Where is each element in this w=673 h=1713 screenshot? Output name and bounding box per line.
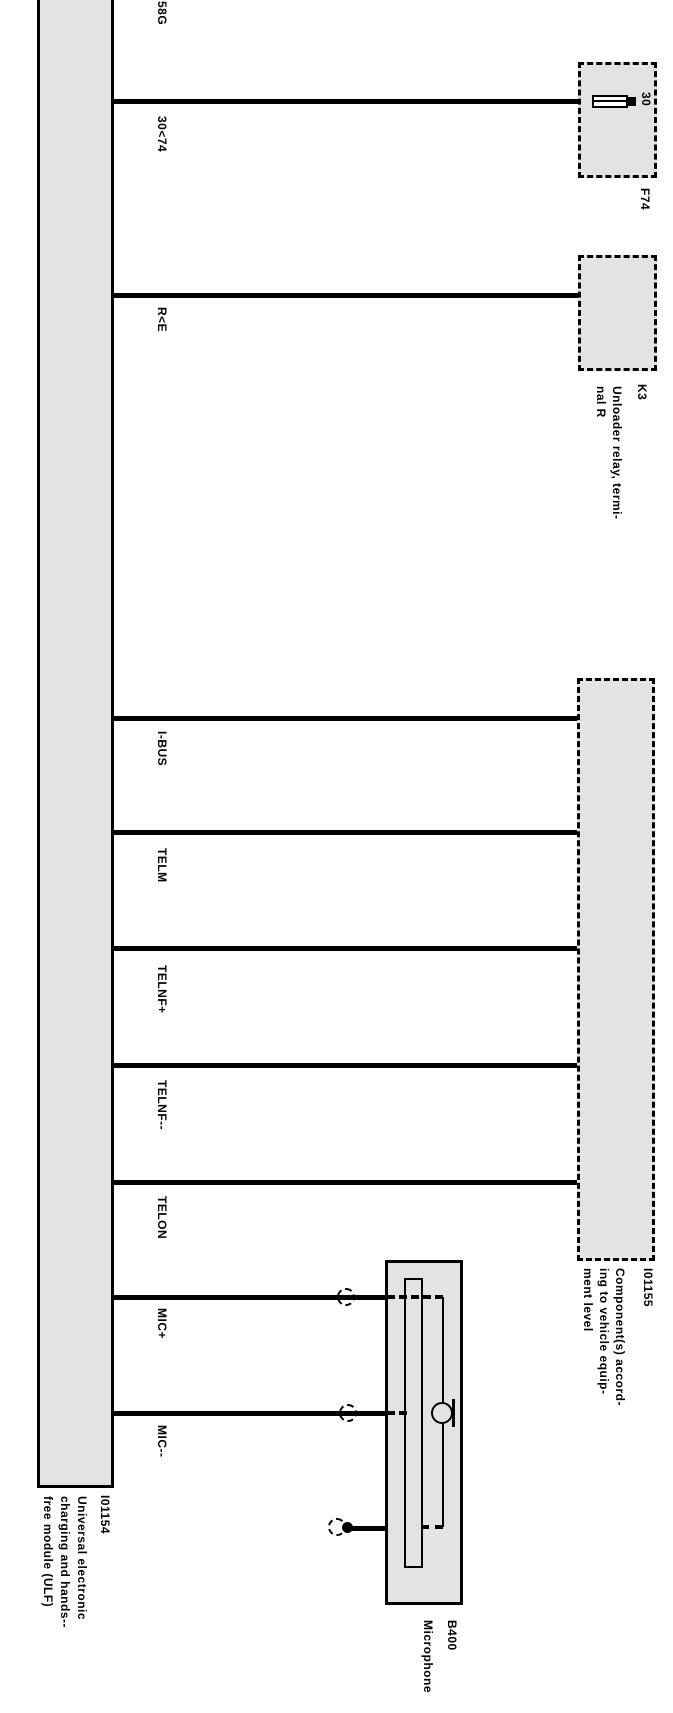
fuse-id-label: F74 xyxy=(637,188,652,210)
microphone-capsule-icon xyxy=(431,1402,453,1424)
equipment-name-label: Component(s) accord- ing to vehicle equi… xyxy=(580,1268,628,1406)
wire-label-30-74: 30<74 xyxy=(154,116,169,152)
fuse-symbol-centerline xyxy=(594,100,626,102)
wire-label-58g: 58G xyxy=(154,1,169,25)
wire-r-e xyxy=(114,293,580,298)
wiring-diagram: 58G 30<74 R<E I-BUS TELM TELNF+ TELNF-- … xyxy=(0,0,673,1713)
wire-label-mic-plus: MIC+ xyxy=(154,1308,169,1339)
wire-telnf-plus xyxy=(114,946,579,951)
relay-box-k3 xyxy=(578,255,657,371)
relay-id-label: K3 xyxy=(634,384,649,400)
wire-label-i-bus: I-BUS xyxy=(154,731,169,766)
connector-mic-minus-icon xyxy=(339,1404,357,1422)
module-name-label: Universal electronic charging and hands-… xyxy=(39,1496,90,1628)
wire-label-mic-minus: MIC-- xyxy=(154,1425,169,1458)
microphone-id-label: B400 xyxy=(444,1620,459,1651)
fuse-terminal-square xyxy=(627,97,636,106)
module-id-label: I01154 xyxy=(97,1495,112,1534)
connector-mic-plus-icon xyxy=(337,1288,355,1306)
shield-junction-dot xyxy=(342,1522,353,1533)
microphone-capsule-bar xyxy=(452,1399,455,1427)
microphone-dash-mic-plus xyxy=(387,1295,443,1299)
wire-i-bus xyxy=(114,716,579,721)
wire-telon xyxy=(114,1180,579,1185)
microphone-box-b400 xyxy=(385,1260,463,1605)
ulf-module-box xyxy=(37,0,114,1488)
wire-label-telon: TELON xyxy=(154,1196,169,1239)
wire-label-r-e: R<E xyxy=(154,307,169,332)
wire-30-74 xyxy=(114,99,580,104)
fuse-box-f74 xyxy=(578,62,657,178)
wire-label-telnf-plus: TELNF+ xyxy=(154,965,169,1014)
wire-telm xyxy=(114,830,579,835)
relay-name-label: Unloader relay, termi- nal R xyxy=(593,386,625,519)
wire-mic-shield xyxy=(348,1526,387,1531)
wire-label-telm: TELM xyxy=(154,848,169,883)
equipment-id-label: I01155 xyxy=(640,1268,655,1307)
microphone-dash-mic-minus xyxy=(387,1411,407,1415)
equipment-box-i01155 xyxy=(577,678,655,1261)
microphone-dash-shield xyxy=(421,1525,443,1529)
microphone-name-label: Microphone xyxy=(420,1620,435,1693)
wire-telnf-minus xyxy=(114,1063,579,1068)
fuse-terminal-label: 30 xyxy=(638,92,653,106)
wire-label-telnf-minus: TELNF-- xyxy=(154,1080,169,1130)
